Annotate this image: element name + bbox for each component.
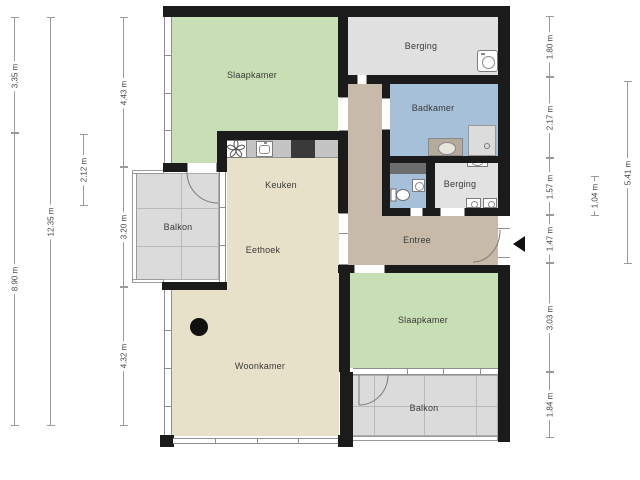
wall [338, 17, 348, 97]
shower-icon [468, 125, 496, 156]
room-slaapkamer-1-floor [172, 131, 217, 163]
dimension-3-03: 3.03 m [549, 263, 550, 372]
balkon-1-railing-bottom [132, 279, 164, 283]
wall [382, 156, 510, 163]
room-label-slaapkamer-1: Slaapkamer [227, 70, 277, 80]
room-label-balkon-1: Balkon [164, 222, 193, 232]
wall [163, 163, 187, 172]
room-label-woonkamer: Woonkamer [235, 361, 285, 371]
stove-icon [226, 140, 247, 158]
door-berging-1 [357, 75, 367, 84]
wall [382, 84, 390, 98]
wall [348, 75, 357, 84]
room-label-berging-1: Berging [405, 41, 437, 51]
window-band [164, 17, 172, 163]
window-band [219, 172, 226, 282]
room-label-slaapkamer-2: Slaapkamer [398, 315, 448, 325]
bathroom-vanity [428, 138, 463, 156]
dimension-4-43: 4.43 m [123, 18, 124, 167]
window-tick [165, 55, 171, 56]
door-badkamer [382, 98, 390, 130]
door-balkon-2-opening [358, 369, 388, 374]
window-tick [298, 439, 299, 443]
balcony-tile-line [137, 208, 218, 209]
wall [423, 208, 440, 216]
dimension-1-84: 1.84 m [549, 372, 550, 437]
wall [217, 131, 227, 172]
room-label-keuken: Keuken [265, 180, 297, 190]
wall [160, 435, 174, 447]
door-slaapkamer-2 [354, 265, 385, 273]
room-label-badkamer: Badkamer [412, 103, 455, 113]
wall [498, 265, 510, 372]
dimension-1-80: 1.80 m [549, 17, 550, 77]
dimension-4-32: 4.32 m [123, 287, 124, 425]
wall [163, 6, 510, 17]
dimension-3-35: 3.35 m [14, 18, 15, 133]
kitchen-sink-icon [256, 141, 273, 157]
dimension-12-35: 12.35 m [50, 18, 51, 425]
dimension-1-47: 1.47 m [549, 215, 550, 263]
window-tick [480, 369, 481, 374]
window-band [164, 290, 172, 435]
wall [498, 17, 510, 215]
window-tick [257, 439, 258, 443]
opening-tick [339, 233, 348, 234]
dimension-1-57: 1.57 m [549, 158, 550, 215]
wall [382, 208, 410, 216]
window-tick [215, 439, 216, 443]
window-tick [165, 368, 171, 369]
wall [162, 282, 227, 290]
window-tick [220, 245, 225, 246]
room-label-balkon-2: Balkon [410, 403, 439, 413]
balkon-1-railing-top [132, 170, 164, 174]
balkon-2-railing-bottom [352, 436, 498, 441]
front-door-opening [498, 228, 510, 258]
wc-sink-icon [412, 179, 425, 192]
dimension-1-04: 1.04 m [594, 177, 595, 215]
room-keuken-eethoek-floor [227, 140, 339, 290]
window-tick [165, 406, 171, 407]
window-tick [220, 207, 225, 208]
dimension-2-17: 2.17 m [549, 77, 550, 158]
floorplan-canvas: Slaapkamer Berging Badkamer Keuken Balko… [0, 0, 640, 480]
window-tick [165, 93, 171, 94]
column-dot [190, 318, 208, 336]
door-slaapkamer-1 [339, 97, 348, 131]
wall [382, 130, 390, 216]
dimension-3-20: 3.20 m [123, 167, 124, 287]
wall [367, 75, 510, 84]
room-label-eethoek: Eethoek [246, 245, 280, 255]
window-tick [165, 330, 171, 331]
kitchen-tall-cabinet [291, 140, 315, 158]
window-band [173, 438, 338, 444]
balkon-1-railing-left [132, 170, 137, 283]
wall [498, 372, 510, 442]
window-tick [443, 369, 444, 374]
dimension-8-90: 8.90 m [14, 133, 15, 425]
entrance-arrow-icon [513, 236, 525, 252]
hallway-corridor-floor [348, 84, 382, 216]
wall [338, 131, 348, 213]
door-slaapkamer-1-balkon [187, 163, 217, 172]
room-label-entree: Entree [403, 235, 431, 245]
room-label-berging-2: Berging [444, 179, 476, 189]
wall [217, 131, 338, 140]
washer-icon [466, 198, 481, 208]
dimension-5-41: 5.41 m [627, 82, 628, 263]
window-tick [165, 130, 171, 131]
balcony-tile-line [137, 246, 218, 247]
dimension-2-12: 2.12 m [83, 135, 84, 205]
passage-eethoek-entree [339, 213, 348, 265]
vanity-sink-icon [438, 142, 456, 155]
door-berging-2 [440, 208, 465, 216]
door-toilet [410, 208, 423, 216]
window-tick [407, 369, 408, 374]
duct-shaft [390, 163, 426, 174]
wall [339, 272, 350, 372]
dryer-icon [483, 198, 497, 208]
wall [465, 208, 510, 216]
washing-machine-icon [477, 50, 498, 72]
wall [338, 435, 352, 447]
wall [385, 265, 510, 273]
